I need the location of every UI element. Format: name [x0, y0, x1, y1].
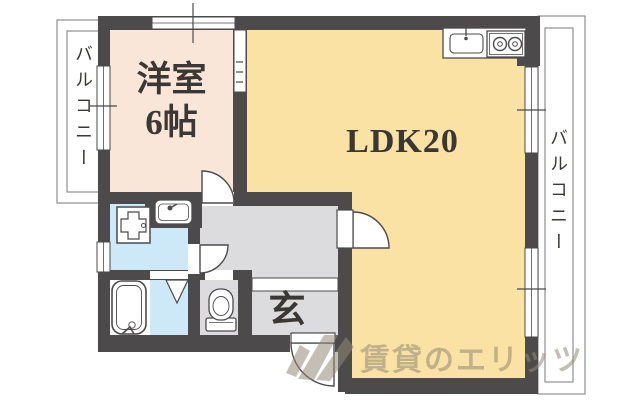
- kitchen-counter: [443, 28, 526, 58]
- opening-bath-door: [150, 271, 188, 279]
- room-western-label: 洋室 6帖: [110, 58, 233, 144]
- floorplan-image: 洋室 6帖 LDK20 玄 バルコニー バルコニー 賃貸のエリッツ: [0, 0, 640, 416]
- room-ldk-label: LDK20: [330, 120, 475, 164]
- room-western-size: 6帖: [110, 101, 233, 144]
- opening-washroom-door: [188, 244, 200, 274]
- washbasin-icon: [155, 200, 192, 224]
- floorplan-geometry: [0, 0, 640, 416]
- sliding-door-western-ldk: [234, 30, 246, 92]
- entrance-label: 玄: [260, 289, 314, 333]
- stove-burners-icon: [487, 31, 525, 57]
- wall-ldk-bottom: [345, 378, 538, 394]
- door-swing-entrance: [291, 333, 335, 386]
- bathtub-icon: [112, 281, 146, 334]
- wall-ldk-south: [233, 192, 352, 206]
- balcony-right-label: バルコニー: [546, 128, 570, 293]
- toilet-icon: [206, 289, 236, 331]
- washing-machine-icon: [117, 207, 150, 243]
- window-washroom-left: [97, 242, 110, 272]
- balcony-left-label: バルコニー: [71, 44, 95, 199]
- room-western-name: 洋室: [110, 58, 233, 101]
